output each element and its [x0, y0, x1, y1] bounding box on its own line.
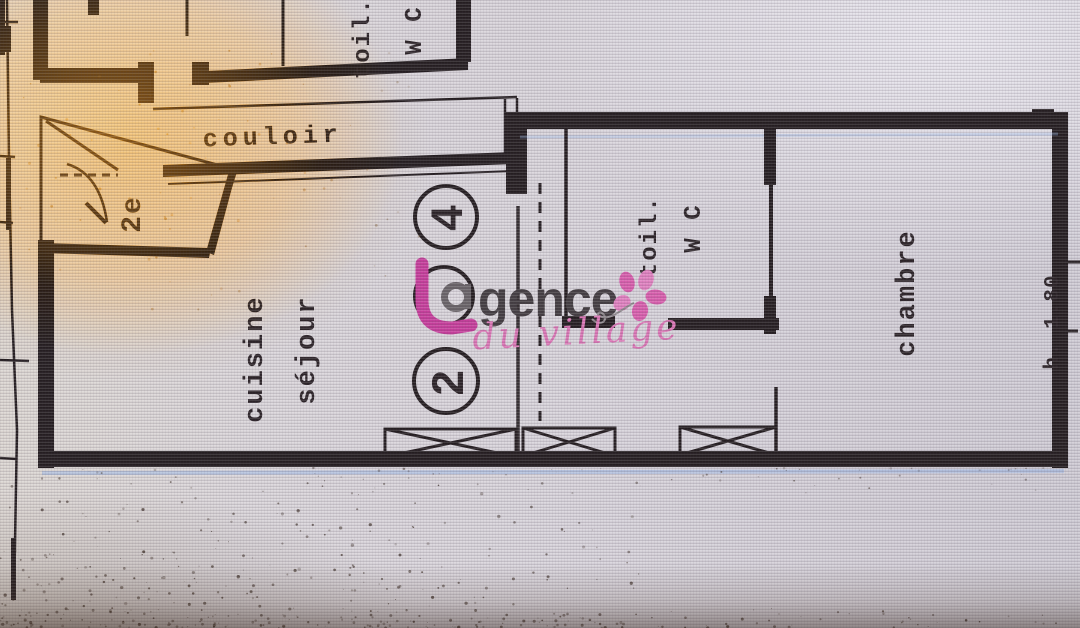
- wall-toilet-top-right: [456, 0, 471, 62]
- scan-fringe: [42, 471, 1064, 473]
- wall-top-left-stub: [506, 112, 527, 194]
- room-labels: toil. W C couloir 2e cuisine séjour toil…: [118, 0, 1080, 423]
- room-label-corridor: couloir: [202, 121, 343, 155]
- room-label-bedroom: chambre: [893, 229, 923, 356]
- floor-plan-photo: 4 2 toil. W C couloir 2e cuisine séjour …: [0, 0, 1080, 628]
- wall-top: [512, 112, 1062, 129]
- wall-left: [38, 240, 54, 468]
- circled-number-2-label: 2: [425, 369, 477, 397]
- property-line: [0, 0, 29, 600]
- room-label-toilet-main: toil. W C: [637, 179, 708, 277]
- wall-toilet-top-bottom: [205, 58, 468, 83]
- watermark-logo: gence du village: [422, 264, 682, 358]
- room-label-kitchen-living: cuisine séjour: [241, 277, 323, 423]
- wall-bottom: [38, 451, 1068, 467]
- circled-number-4-label: 4: [424, 204, 476, 232]
- scan-fringe: [520, 134, 1058, 137]
- door-swing-arc: [67, 164, 107, 222]
- height-note-label: h. 1.80: [1042, 274, 1065, 369]
- floor-label-2e: 2e: [118, 195, 149, 233]
- floor-plan-drawing: 4 2 toil. W C couloir 2e cuisine séjour …: [0, 0, 1080, 628]
